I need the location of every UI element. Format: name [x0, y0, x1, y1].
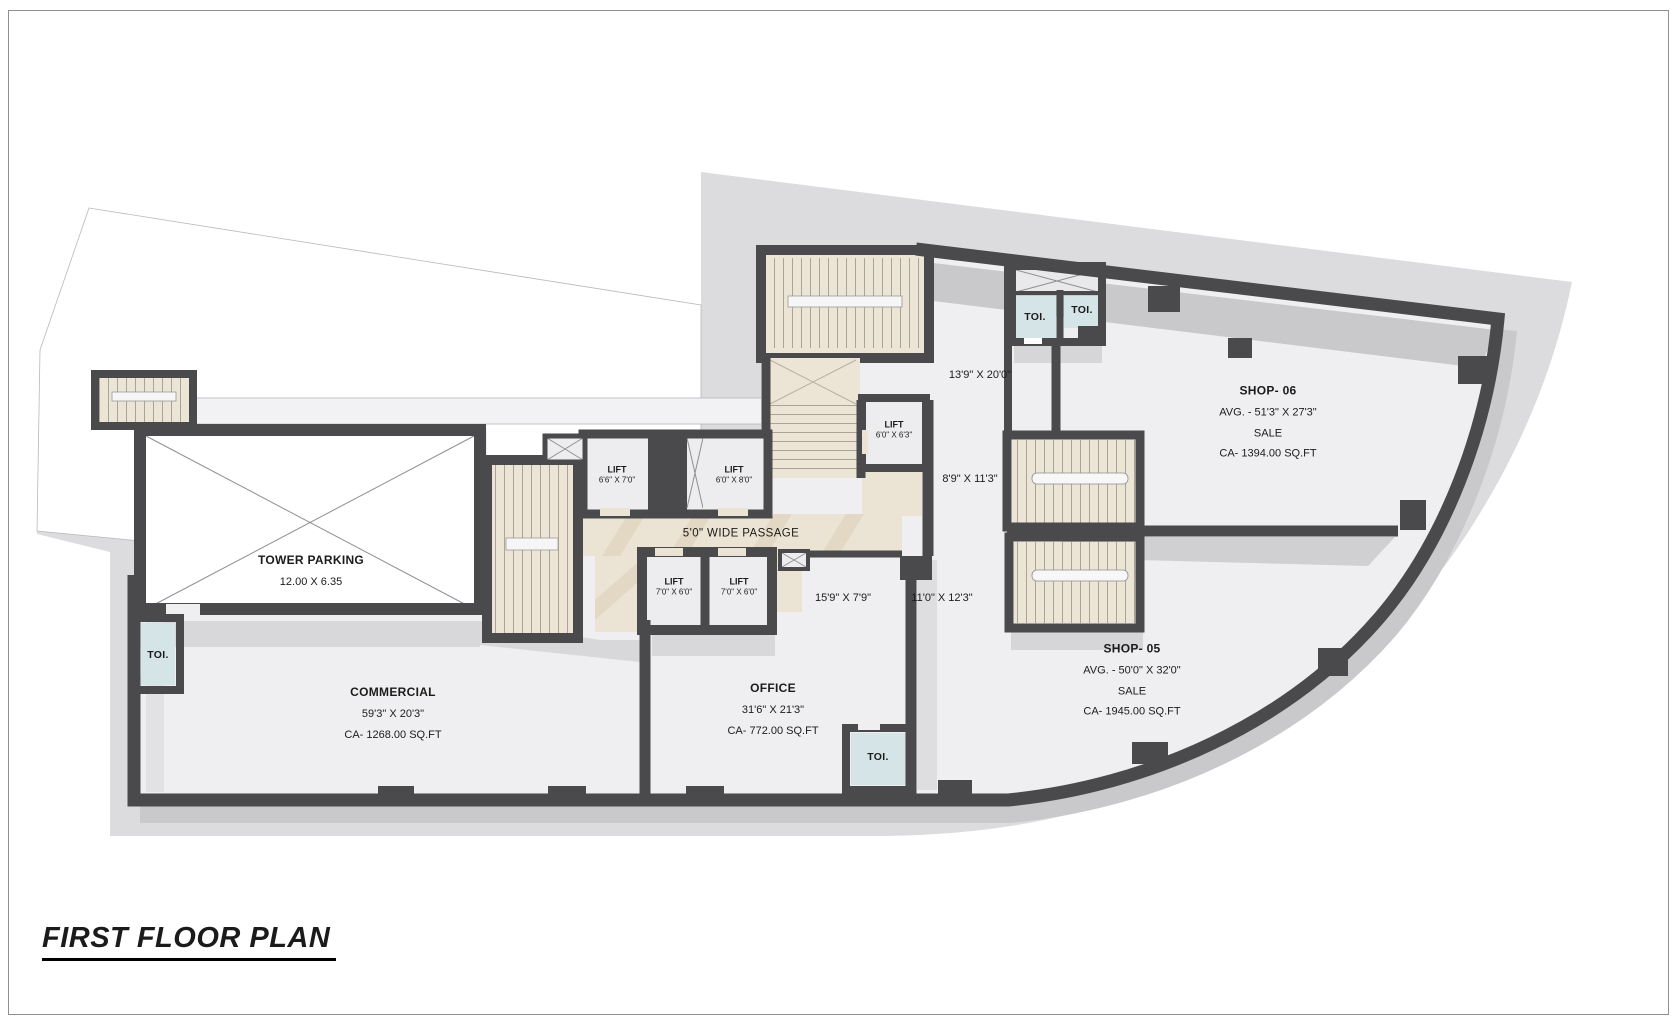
tower-parking-name: TOWER PARKING	[258, 553, 364, 567]
floor-plan-page: TOWER PARKING 12.00 X 6.35 COMMERCIAL 59…	[0, 0, 1678, 1023]
shop-06-avg: AVG. - 51'3" X 27'3"	[1219, 406, 1316, 418]
shop-05-area: CA- 1945.00 SQ.FT	[1083, 706, 1180, 718]
shop-06-label: SHOP- 06 AVG. - 51'3" X 27'3" SALE CA- 1…	[1219, 380, 1316, 463]
lift-5-label: LIFT 6'0" X 6'3"	[876, 419, 912, 440]
shop-06-area: CA- 1394.00 SQ.FT	[1219, 448, 1316, 460]
stair-east-lower	[1009, 537, 1140, 628]
open-area-dim-3: 11'0" X 12'3"	[911, 591, 972, 605]
lift-4-label: LIFT 7'0" X 6'0"	[721, 576, 757, 597]
shop-05-sale: SALE	[1118, 685, 1146, 697]
lift-2-label: LIFT 6'0" X 8'0"	[716, 464, 752, 485]
wall-stub	[900, 556, 932, 580]
open-area-dim-4: 15'9" X 7'9"	[815, 591, 871, 605]
floor-plan-drawing	[0, 0, 1678, 1023]
lift-3-dims: 7'0" X 6'0"	[656, 588, 692, 598]
page-title: FIRST FLOOR PLAN	[42, 922, 336, 961]
passage-label: 5'0" WIDE PASSAGE	[683, 527, 799, 542]
commercial-name: COMMERCIAL	[350, 685, 436, 699]
stair-west	[487, 460, 578, 638]
lift-4-dims: 7'0" X 6'0"	[721, 588, 757, 598]
tower-parking-label: TOWER PARKING 12.00 X 6.35	[258, 550, 364, 592]
toilet-north-2-label: TOI.	[1071, 304, 1092, 318]
office-dims: 31'6" X 21'3"	[742, 704, 804, 716]
commercial-dims: 59'3" X 20'3"	[362, 708, 424, 720]
commercial-label: COMMERCIAL 59'3" X 20'3" CA- 1268.00 SQ.…	[344, 682, 441, 744]
tower-parking-dims: 12.00 X 6.35	[280, 576, 342, 588]
office-label: OFFICE 31'6" X 21'3" CA- 772.00 SQ.FT	[727, 678, 818, 740]
toilet-office-label: TOI.	[867, 751, 888, 765]
stair-top-left	[95, 374, 193, 426]
office-area: CA- 772.00 SQ.FT	[727, 724, 818, 736]
lift-1-dims: 6'6" X 7'0"	[599, 476, 635, 486]
toilet-north-1-label: TOI.	[1024, 311, 1045, 325]
open-area-dim-1: 13'9" X 20'0"	[949, 368, 1011, 382]
lift-3-label: LIFT 7'0" X 6'0"	[656, 576, 692, 597]
lift-3-name: LIFT	[656, 576, 692, 587]
lift-4-name: LIFT	[721, 576, 757, 587]
lift-1-label: LIFT 6'6" X 7'0"	[599, 464, 635, 485]
commercial-area: CA- 1268.00 SQ.FT	[344, 728, 441, 740]
toilet-west-label: TOI.	[147, 649, 168, 663]
lift-5-name: LIFT	[876, 419, 912, 430]
shop-05-label: SHOP- 05 AVG. - 50'0" X 32'0" SALE CA- 1…	[1083, 638, 1180, 721]
lift-5-dims: 6'0" X 6'3"	[876, 431, 912, 441]
lift-2-dims: 6'0" X 8'0"	[716, 476, 752, 486]
shop-05-avg: AVG. - 50'0" X 32'0"	[1083, 664, 1180, 676]
shop-06-name: SHOP- 06	[1239, 383, 1296, 397]
lift-2-name: LIFT	[716, 464, 752, 475]
office-name: OFFICE	[750, 681, 796, 695]
shop-06-sale: SALE	[1254, 427, 1282, 439]
shop-05-name: SHOP- 05	[1103, 641, 1160, 655]
open-area-dim-2: 8'9" X 11'3"	[942, 472, 997, 486]
lift-1-name: LIFT	[599, 464, 635, 475]
stair-east-upper	[1007, 435, 1140, 527]
